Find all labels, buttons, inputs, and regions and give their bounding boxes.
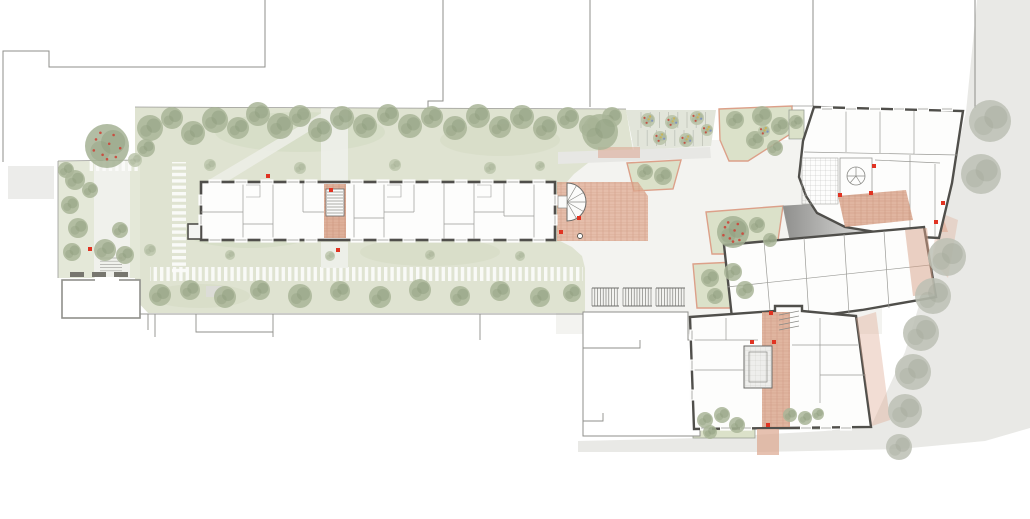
blossom-dot: [643, 117, 645, 119]
garden-trees: [493, 289, 502, 298]
entrance-marker: [869, 191, 873, 195]
blossom-dot: [646, 122, 648, 124]
garden-trees: [536, 125, 547, 136]
garden-trees: [565, 291, 573, 299]
garden-trees: [65, 250, 73, 258]
garden-trees: [769, 146, 776, 153]
garden-trees: [292, 113, 302, 123]
garden-trees: [60, 168, 67, 175]
garden-trees: [333, 115, 344, 126]
garden-trees: [513, 114, 524, 125]
blossom-dot: [115, 156, 118, 159]
entrance-marker: [88, 247, 92, 251]
garden-trees: [469, 113, 480, 124]
garden-trees: [560, 115, 570, 125]
garden-trees: [773, 124, 781, 132]
blossom-dot: [764, 129, 766, 131]
blossom-dot: [93, 149, 96, 152]
street-trees: [908, 329, 924, 345]
blossom-dot: [698, 113, 700, 115]
blossom-dot: [670, 124, 672, 126]
entrance-marker: [266, 174, 270, 178]
building-a: [201, 182, 555, 240]
garden-trees: [446, 125, 457, 136]
garden-trees: [791, 120, 797, 126]
blossom-dot: [684, 142, 686, 144]
garden-trees: [639, 170, 646, 177]
street-trees: [920, 292, 936, 308]
blossom-dot: [663, 138, 665, 140]
garden-trees: [785, 413, 791, 419]
blossom-dot: [655, 135, 657, 137]
garden-trees: [728, 118, 736, 126]
garden-trees: [380, 112, 390, 122]
tiled-terrace: [802, 158, 838, 204]
blossom-dot: [681, 137, 683, 139]
entry-walk: [757, 429, 779, 455]
blossom-dot: [705, 131, 707, 133]
blossom-dot: [724, 226, 727, 229]
blossom-dot: [689, 140, 691, 142]
blossom-dot: [733, 229, 736, 232]
garden-trees: [372, 294, 382, 304]
shrubs: [426, 254, 431, 259]
garden-trees: [205, 117, 217, 129]
garden-trees: [270, 123, 282, 135]
neighbor-outline: [196, 314, 273, 332]
blossom-dot: [727, 221, 730, 224]
blossom-dot: [703, 127, 705, 129]
garden-trees: [114, 228, 121, 235]
garden-trees: [765, 238, 771, 244]
point-marker: [578, 234, 583, 239]
stepped-path: [150, 267, 583, 281]
blossom-dot: [765, 127, 767, 129]
shrubs: [226, 254, 231, 259]
garden-trees: [814, 413, 819, 418]
garden-trees: [533, 295, 542, 304]
garden-trees: [249, 111, 260, 122]
garden-trees: [84, 188, 91, 195]
site-plan-svg: [0, 0, 1030, 519]
garden-trees: [140, 125, 152, 137]
garden-trees: [164, 115, 174, 125]
blossom-dot: [695, 120, 697, 122]
garden-trees: [311, 127, 322, 138]
garden-trees: [401, 123, 412, 134]
blossom-dot: [661, 133, 663, 135]
left-driveway: [8, 166, 54, 199]
garden-trees: [63, 203, 71, 211]
blossom-dot: [707, 128, 709, 130]
garden-trees: [333, 289, 342, 298]
garden-trees: [139, 146, 147, 154]
garden-trees: [716, 413, 723, 420]
shrubs: [536, 165, 541, 170]
blossom-dot: [660, 136, 662, 138]
blossom-dot: [119, 147, 122, 150]
garden-trees: [412, 287, 422, 297]
entry-porch: [188, 224, 201, 239]
blossom-dot: [722, 234, 725, 237]
blossom-dot: [651, 120, 653, 122]
shrubs: [326, 255, 331, 260]
entry-gap: [95, 277, 119, 283]
garden-trees: [152, 292, 162, 302]
garden-trees: [705, 430, 711, 436]
blossom-dot: [95, 138, 98, 141]
blossom-dot: [697, 116, 699, 118]
garden-trees: [699, 418, 706, 425]
entrance-marker: [329, 188, 333, 192]
garden-trees: [356, 123, 367, 134]
garden-trees: [217, 294, 227, 304]
entrance-marker: [766, 423, 770, 427]
garden-trees: [656, 174, 664, 182]
planter: [70, 272, 84, 277]
shrubs: [206, 164, 211, 169]
entrance-marker: [559, 230, 563, 234]
entrance-marker: [577, 216, 581, 220]
entrance-marker: [769, 311, 773, 315]
garden-trees: [453, 294, 462, 303]
blossom-dot: [738, 239, 741, 242]
blossom-dot: [658, 140, 660, 142]
blossom-dot: [667, 119, 669, 121]
entrance-marker: [336, 248, 340, 252]
neighbor-building: [62, 280, 140, 318]
blossom-dot: [762, 132, 764, 134]
blossom-dot: [732, 240, 735, 243]
blossom-dot: [649, 115, 651, 117]
street-trees: [966, 169, 984, 187]
garden-trees: [183, 288, 192, 297]
blossom-dot: [112, 134, 115, 137]
planter: [92, 272, 106, 277]
stair-room: [840, 158, 872, 196]
site-plan-canvas: [0, 0, 1030, 519]
garden-trees: [755, 114, 764, 123]
stair-landing: [558, 196, 567, 208]
shrubs: [296, 167, 301, 172]
neighbor-building: [583, 312, 700, 436]
blossom-dot: [673, 117, 675, 119]
blossom-dot: [675, 122, 677, 124]
shrubs: [486, 167, 491, 172]
garden-trees: [97, 247, 107, 257]
shrubs: [146, 249, 151, 254]
blossom-dot: [101, 154, 104, 157]
garden-trees: [253, 288, 262, 297]
street-trees: [933, 253, 950, 270]
blossom-dot: [106, 158, 109, 161]
shrubs: [516, 255, 521, 260]
garden-trees: [291, 293, 302, 304]
blossom-dot: [672, 120, 674, 122]
blossom-dot: [648, 118, 650, 120]
garden-trees: [230, 125, 240, 135]
street-trees: [900, 368, 916, 384]
blossom-dot: [710, 130, 712, 132]
entrance-marker: [934, 220, 938, 224]
street-trees: [892, 407, 907, 422]
blossom-dot: [729, 237, 732, 240]
garden-trees: [71, 226, 80, 235]
garden-trees: [751, 223, 758, 230]
garden-trees: [748, 138, 756, 146]
entrance-marker: [750, 340, 754, 344]
entrance-marker: [872, 164, 876, 168]
shrubs: [391, 164, 396, 169]
entrance-marker: [941, 201, 945, 205]
street-trees: [889, 444, 901, 456]
garden-trees: [726, 270, 734, 278]
planter: [114, 272, 128, 277]
blossom-dot: [737, 223, 740, 226]
blossom-dot: [99, 132, 102, 135]
stair-flight: [326, 189, 344, 216]
entrance-marker: [838, 193, 842, 197]
garden-trees: [118, 253, 126, 261]
blossom-dot: [767, 131, 769, 133]
blossom-dot: [687, 135, 689, 137]
blossom-dot: [708, 126, 710, 128]
garden-trees: [703, 276, 711, 284]
garden-trees: [587, 128, 603, 144]
blossom-dot: [692, 115, 694, 117]
blossom-dot: [760, 128, 762, 130]
garden-trees: [184, 130, 195, 141]
garden-trees: [738, 288, 746, 296]
blossom-dot: [700, 118, 702, 120]
garden-trees: [731, 423, 738, 430]
blossom-dot: [686, 138, 688, 140]
garden-trees: [68, 178, 77, 187]
shrubs: [130, 158, 136, 164]
blossom-dot: [741, 232, 744, 235]
neighbor-outline: [428, 0, 443, 107]
garden-trees: [709, 294, 716, 301]
stepped-path: [172, 162, 186, 275]
entrance-marker: [772, 340, 776, 344]
street-trees: [974, 116, 993, 135]
garden-trees: [800, 416, 806, 422]
blossom-dot: [108, 143, 111, 146]
garden-trees: [424, 114, 434, 124]
garden-trees: [492, 124, 502, 134]
